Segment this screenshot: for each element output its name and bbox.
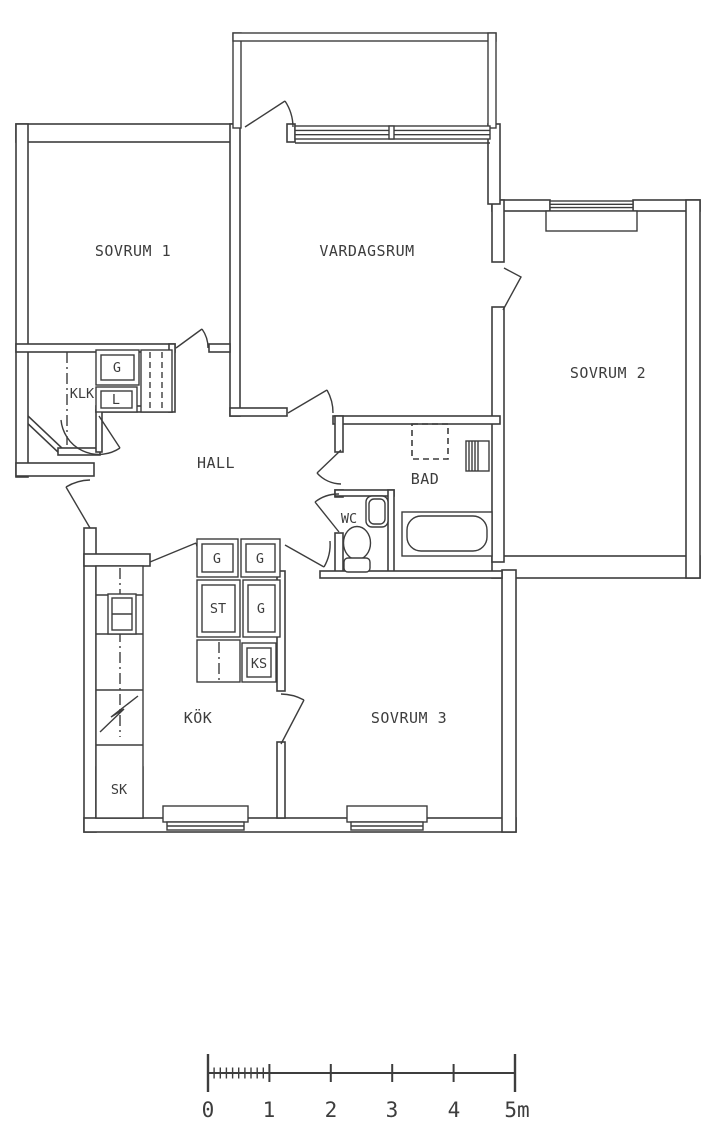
scale-label-3: 3 [386, 1098, 399, 1122]
storage-label-g-top-left: G [213, 551, 221, 567]
washbasin-wc [366, 496, 388, 527]
cabinet-blank [197, 640, 240, 682]
wall-chamfer-core [25, 417, 62, 452]
scale-label-5m: 5m [504, 1098, 529, 1122]
wall-kok-top [84, 554, 150, 566]
room-label-kok: KÖK [184, 708, 213, 727]
kitchen-sink [108, 594, 136, 634]
washing-machine-dashed [412, 424, 448, 459]
storage-label-l-hall: L [112, 392, 120, 408]
bathroom-fixtures [344, 424, 493, 572]
wardrobe-dashed [141, 350, 172, 412]
wall-wc-bad-divider [388, 490, 394, 577]
scale-bar: 0 1 2 3 4 5m [202, 1054, 530, 1122]
window-sill [546, 211, 637, 231]
floor-plan: SOVRUM 1 VARDAGSRUM SOVRUM 2 HALL BAD WC… [0, 0, 715, 1147]
wall-kok-sovrum3-lower [277, 742, 285, 818]
wall-sovrum2-bottom [492, 556, 700, 578]
door-bad [317, 450, 341, 484]
window-kok [163, 806, 248, 830]
kitchen-fixtures [96, 566, 143, 818]
storage-label-ks: KS [251, 656, 267, 672]
wall-sovrum1-bottom-right [209, 344, 230, 352]
wall-vardagsrum-bottom [230, 408, 287, 416]
storage-label-g-hall: G [113, 360, 121, 376]
door-entrance [66, 480, 90, 528]
toilet-tank [344, 558, 370, 572]
window-sill [347, 806, 427, 822]
wall-right-lower [502, 570, 516, 832]
wall-wc-top [335, 490, 394, 496]
scale-label-4: 4 [448, 1098, 461, 1122]
wall-left-lower [84, 528, 96, 832]
window-sovrum2 [546, 201, 637, 231]
wall-sovrum2-left-lower [492, 307, 504, 562]
room-label-wc: WC [341, 511, 357, 527]
wall-bottom-outer [84, 818, 516, 832]
washbasin-bad [466, 441, 489, 471]
room-label-bad: BAD [411, 470, 440, 488]
wall-sovrum1-vardagsrum [230, 124, 240, 416]
door-wc [315, 494, 339, 532]
window-sill [163, 806, 248, 822]
scale-label-1: 1 [263, 1098, 276, 1122]
room-labels: SOVRUM 1 VARDAGSRUM SOVRUM 2 HALL BAD WC… [70, 242, 646, 798]
door-vardagsrum [288, 390, 333, 413]
room-label-vardagsrum: VARDAGSRUM [319, 242, 414, 260]
door-sovrum1 [176, 329, 208, 348]
wall-entrance-top [16, 463, 94, 476]
window-vardagsrum [295, 126, 490, 143]
wall-balcony-door-post [287, 124, 295, 142]
storage-label-klk: KLK [70, 386, 95, 402]
wall-sovrum2-right [686, 200, 700, 578]
wall-bad-left-upper [335, 416, 343, 452]
scale-label-2: 2 [325, 1098, 338, 1122]
wall-sovrum2-left-upper [492, 200, 504, 262]
opening-sovrum2 [503, 268, 521, 310]
floor-plan-drawing: SOVRUM 1 VARDAGSRUM SOVRUM 2 HALL BAD WC… [0, 0, 715, 1147]
storage-label-g-top-right: G [256, 551, 264, 567]
window-sovrum3 [347, 806, 427, 830]
room-label-hall: HALL [197, 454, 235, 472]
storage-label-st: ST [210, 601, 226, 617]
room-label-sovrum-1: SOVRUM 1 [95, 242, 171, 260]
bathtub [402, 512, 492, 556]
storage-label-g-mid: G [257, 601, 265, 617]
door-kok [150, 543, 199, 562]
balcony [233, 33, 496, 128]
window-mullion [389, 126, 394, 139]
door-balcony [245, 101, 293, 127]
wall-bad-top [333, 416, 500, 424]
balcony-wall-right [488, 33, 496, 128]
storage-label-sk: SK [111, 782, 128, 798]
balcony-wall-left [233, 33, 241, 128]
wall-left-outer [16, 124, 28, 477]
scale-label-0: 0 [202, 1098, 215, 1122]
door-sovrum3-hall [285, 541, 330, 567]
room-label-sovrum-2: SOVRUM 2 [570, 364, 646, 382]
balcony-wall-top [233, 33, 496, 41]
door-kok-sovrum3 [281, 694, 304, 744]
room-label-sovrum-3: SOVRUM 3 [371, 709, 447, 727]
wall-top-sovrum1 [16, 124, 239, 142]
toilet [344, 527, 371, 573]
